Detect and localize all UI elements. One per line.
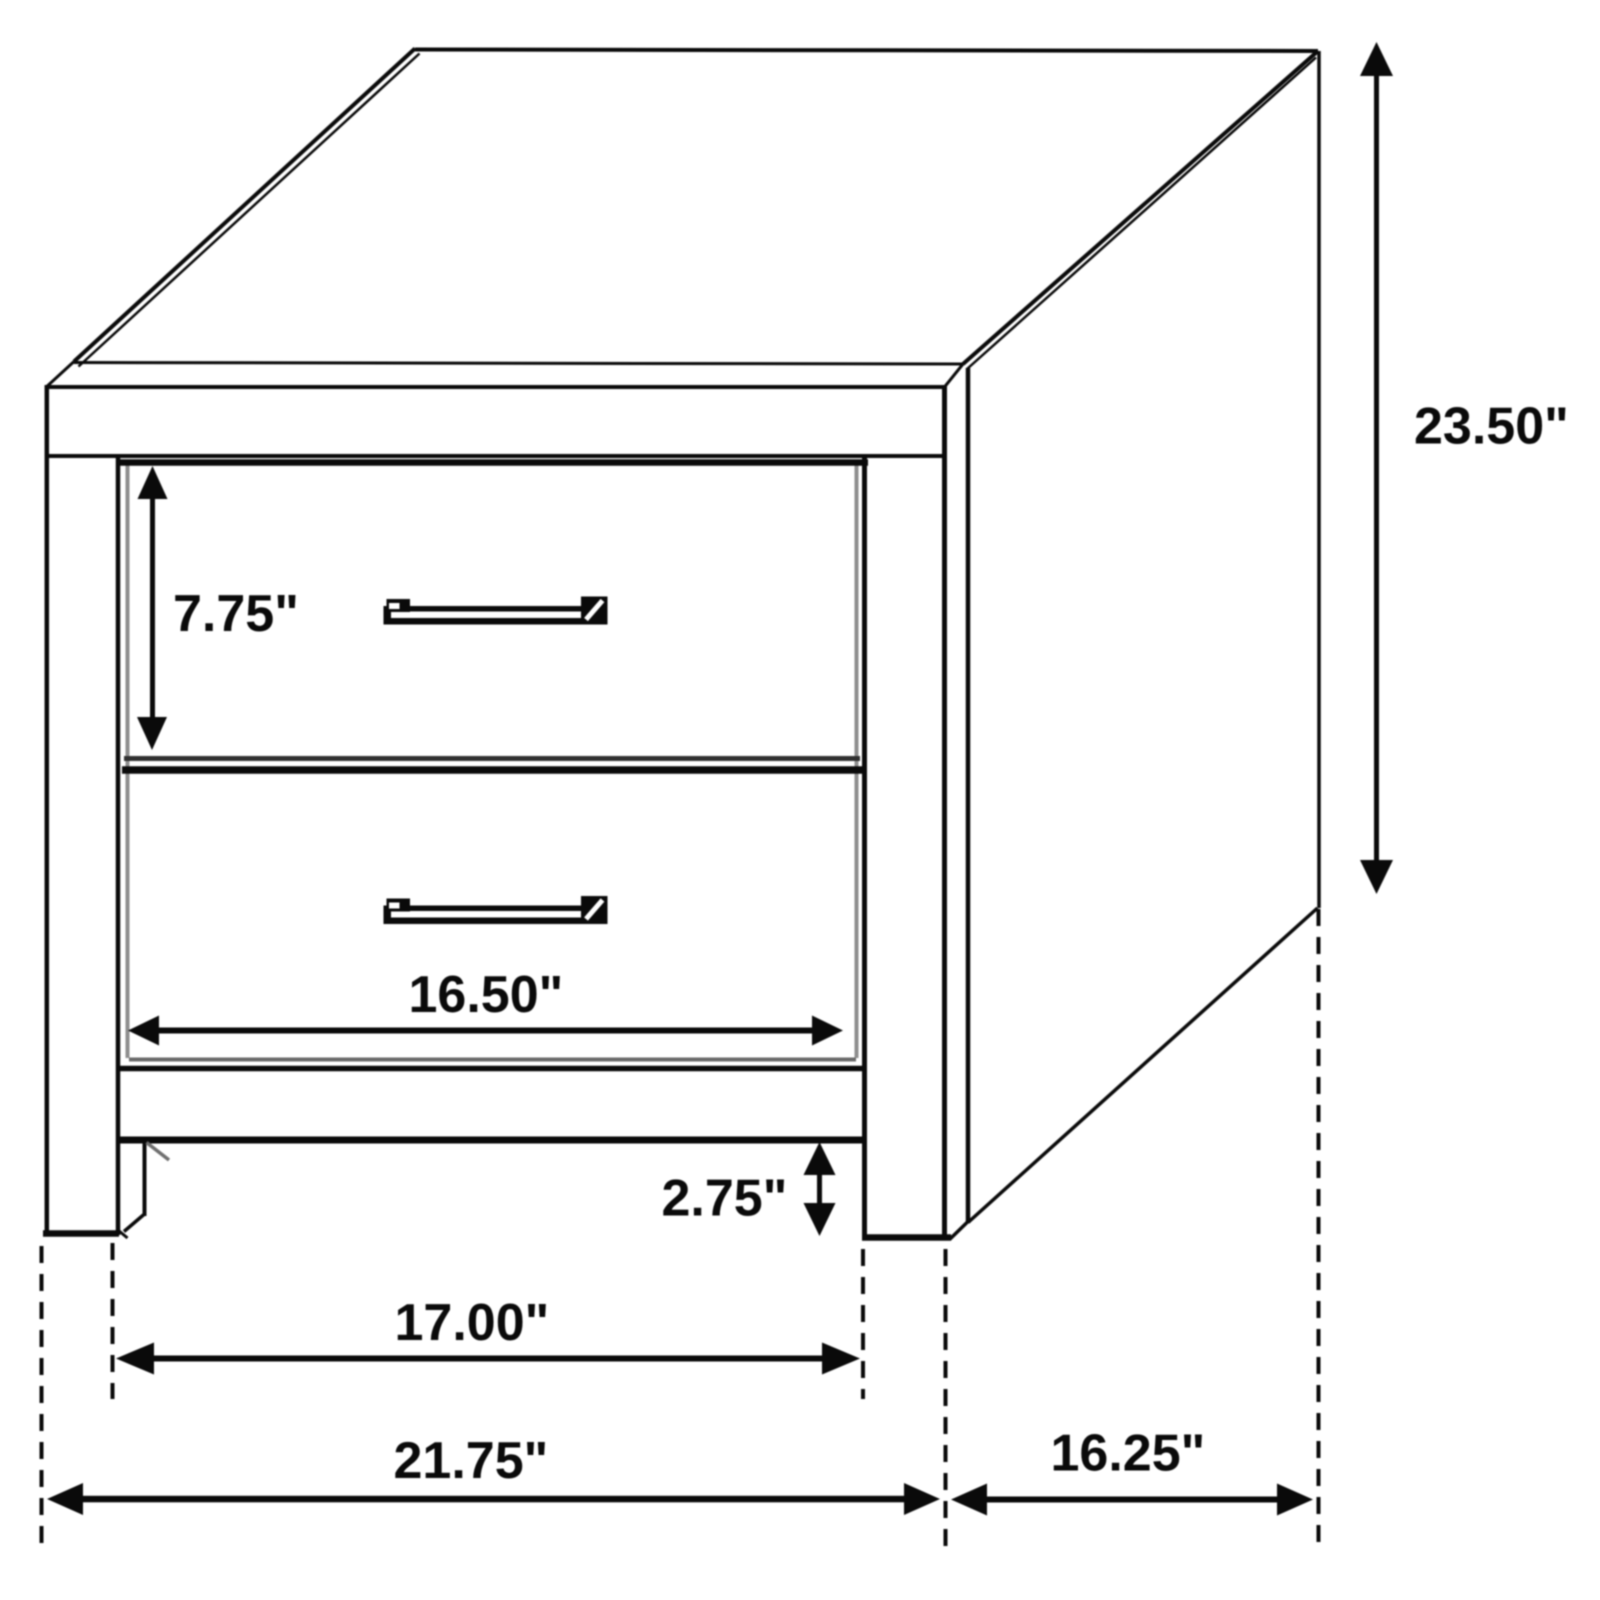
svg-text:21.75": 21.75" <box>394 1432 549 1490</box>
svg-text:16.50": 16.50" <box>409 966 564 1024</box>
svg-text:23.50": 23.50" <box>1414 398 1569 456</box>
svg-text:7.75": 7.75" <box>173 585 299 643</box>
svg-text:16.25": 16.25" <box>1051 1425 1206 1483</box>
svg-text:2.75": 2.75" <box>662 1170 788 1228</box>
svg-text:17.00": 17.00" <box>395 1294 550 1352</box>
